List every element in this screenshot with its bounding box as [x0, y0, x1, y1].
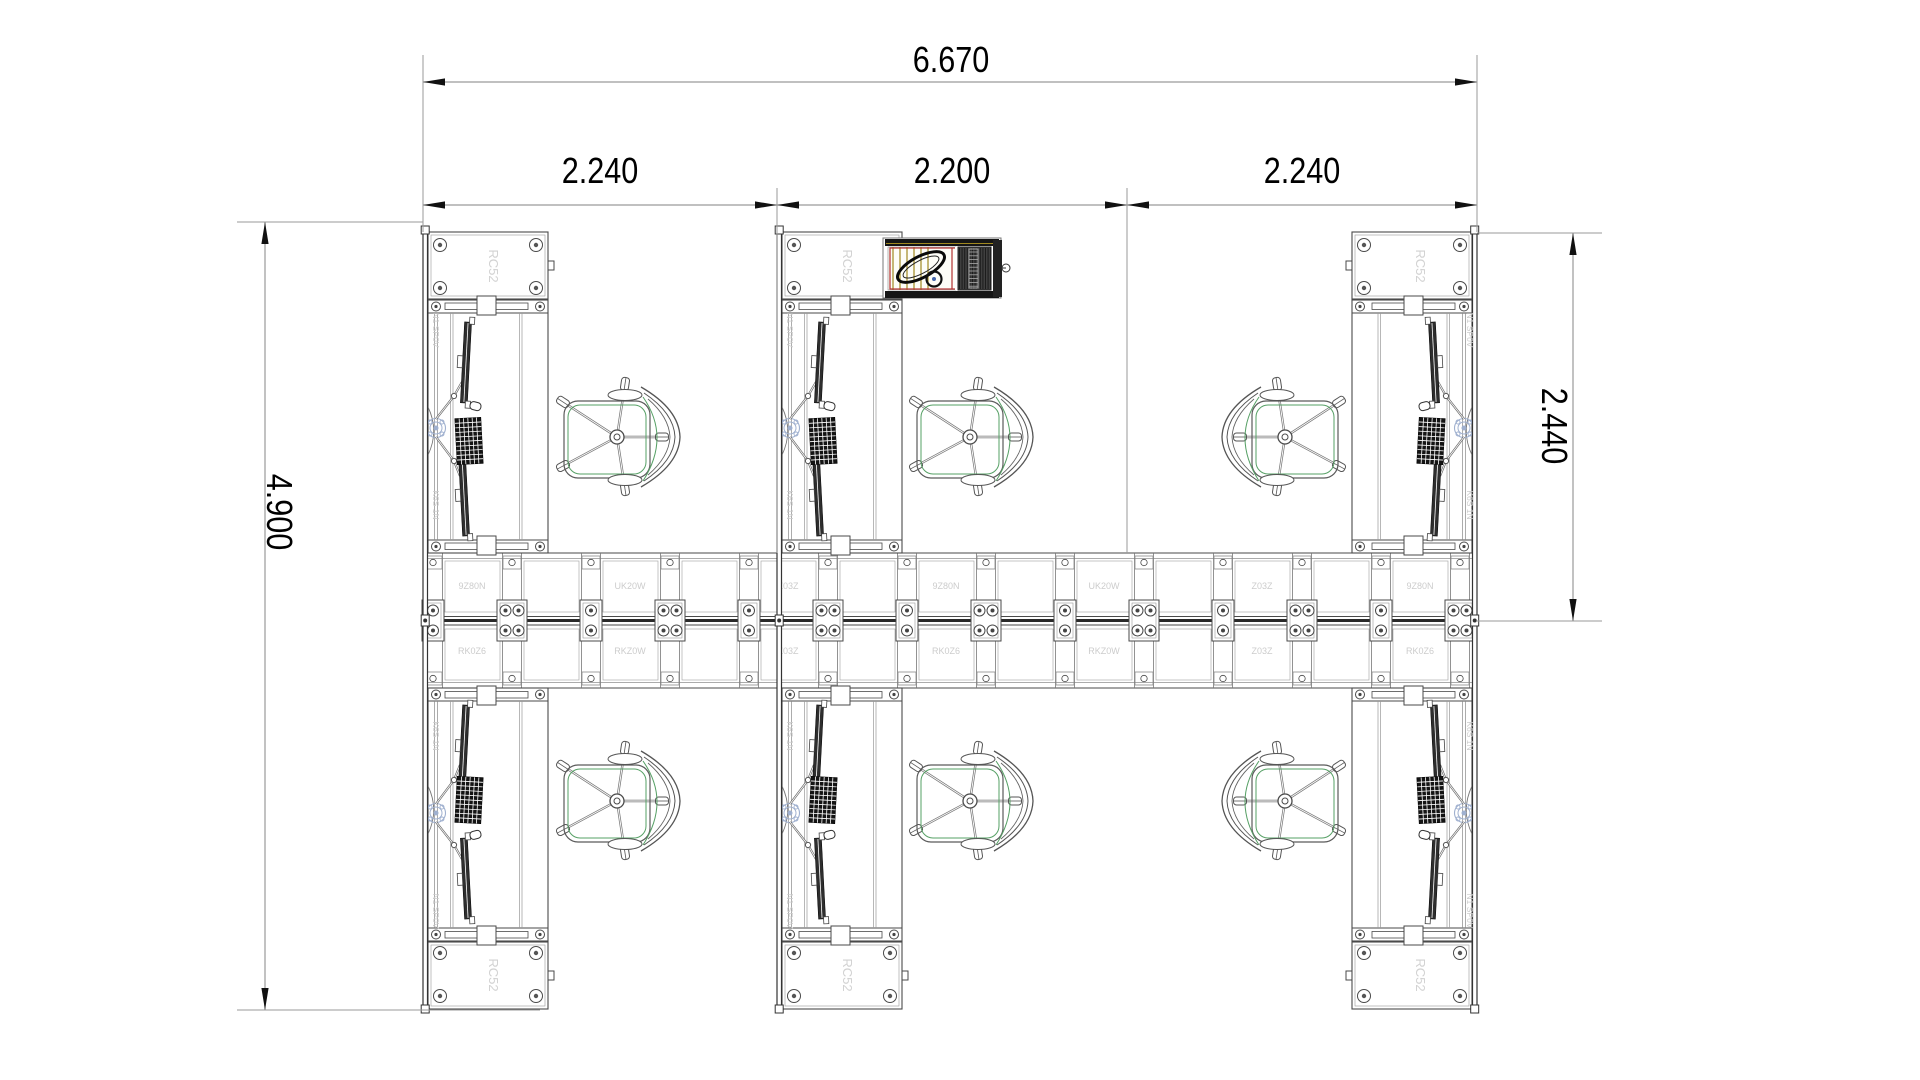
svg-text:N1 SP0V: N1 SP0V [431, 894, 441, 929]
printer-unit [883, 238, 1010, 298]
svg-text:K6S 1N: K6S 1N [431, 490, 441, 519]
svg-text:K6S 1N: K6S 1N [1465, 490, 1475, 519]
svg-text:RKZ0W: RKZ0W [614, 646, 646, 656]
desk-body [782, 296, 902, 555]
return-unit [1346, 942, 1472, 1009]
floor-plan-page: 9Z80NRK0Z6UK20WRKZ0WZ03ZZ03Z9Z80NRK0Z6UK… [0, 0, 1920, 1080]
office-chair [555, 377, 680, 496]
svg-text:RK0Z6: RK0Z6 [458, 646, 486, 656]
svg-text:N1 SP0V: N1 SP0V [785, 894, 795, 929]
spine-beam: 9Z80NRK0Z6UK20WRKZ0WZ03ZZ03Z9Z80NRK0Z6UK… [422, 553, 1475, 688]
desk-body [428, 296, 548, 555]
svg-text:RKZ0W: RKZ0W [1088, 646, 1120, 656]
svg-text:Z03Z: Z03Z [1251, 646, 1273, 656]
svg-text:RC52: RC52 [1413, 958, 1428, 991]
desk-body [428, 686, 548, 945]
keyboard [455, 417, 483, 464]
caster [620, 741, 630, 755]
desk-body [782, 686, 902, 945]
svg-text:N1 SP0V: N1 SP0V [785, 313, 795, 348]
caster [1272, 741, 1282, 755]
svg-text:K6S 1N: K6S 1N [431, 721, 441, 750]
caster [973, 377, 983, 391]
office-chair [908, 741, 1033, 860]
dimension-label-desk-zone-depth: 2.440 [1536, 388, 1572, 465]
svg-text:RC52: RC52 [486, 249, 501, 282]
dimension-label-segment-right: 2.240 [1264, 153, 1341, 189]
divider-rail [775, 226, 783, 1013]
dimension-label-overall-width: 6.670 [913, 42, 990, 78]
return-unit [1346, 232, 1472, 299]
svg-text:RC52: RC52 [486, 958, 501, 991]
svg-text:Z03Z: Z03Z [1251, 581, 1273, 591]
divider-rail [421, 226, 429, 1013]
caster [620, 377, 630, 391]
svg-text:RK0Z6: RK0Z6 [1406, 646, 1434, 656]
svg-text:UK20W: UK20W [1088, 581, 1120, 591]
keyboard [1417, 417, 1445, 464]
svg-text:K6S 1N: K6S 1N [1465, 721, 1475, 750]
desk-unit [1346, 232, 1474, 555]
dimension-label-total-depth: 4.900 [261, 474, 297, 551]
keyboard [455, 776, 483, 823]
svg-text:RC52: RC52 [840, 249, 855, 282]
dimension-label-segment-middle: 2.200 [914, 153, 991, 189]
keyboard [809, 417, 837, 464]
svg-text:K6S 1N: K6S 1N [785, 490, 795, 519]
keyboard [1417, 776, 1445, 823]
office-chair [555, 741, 680, 860]
desk-body [1352, 686, 1472, 945]
svg-text:9Z80N: 9Z80N [932, 581, 959, 591]
svg-text:N1 SP0V: N1 SP0V [1465, 894, 1475, 929]
keyboard [809, 776, 837, 823]
office-chair [1222, 377, 1347, 496]
svg-text:RC52: RC52 [840, 958, 855, 991]
svg-text:N1 SP0V: N1 SP0V [1465, 313, 1475, 348]
caster [1272, 377, 1282, 391]
svg-text:9Z80N: 9Z80N [1406, 581, 1433, 591]
svg-text:N1 SP0V: N1 SP0V [431, 313, 441, 348]
caster [973, 741, 983, 755]
desk-body [1352, 296, 1472, 555]
svg-text:RC52: RC52 [1413, 249, 1428, 282]
office-chair [1222, 741, 1347, 860]
svg-text:K6S 1N: K6S 1N [785, 721, 795, 750]
svg-text:UK20W: UK20W [614, 581, 646, 591]
dimension-label-segment-left: 2.240 [562, 153, 639, 189]
svg-text:9Z80N: 9Z80N [458, 581, 485, 591]
office-chair [908, 377, 1033, 496]
svg-text:RK0Z6: RK0Z6 [932, 646, 960, 656]
desk-unit [1346, 686, 1474, 1009]
